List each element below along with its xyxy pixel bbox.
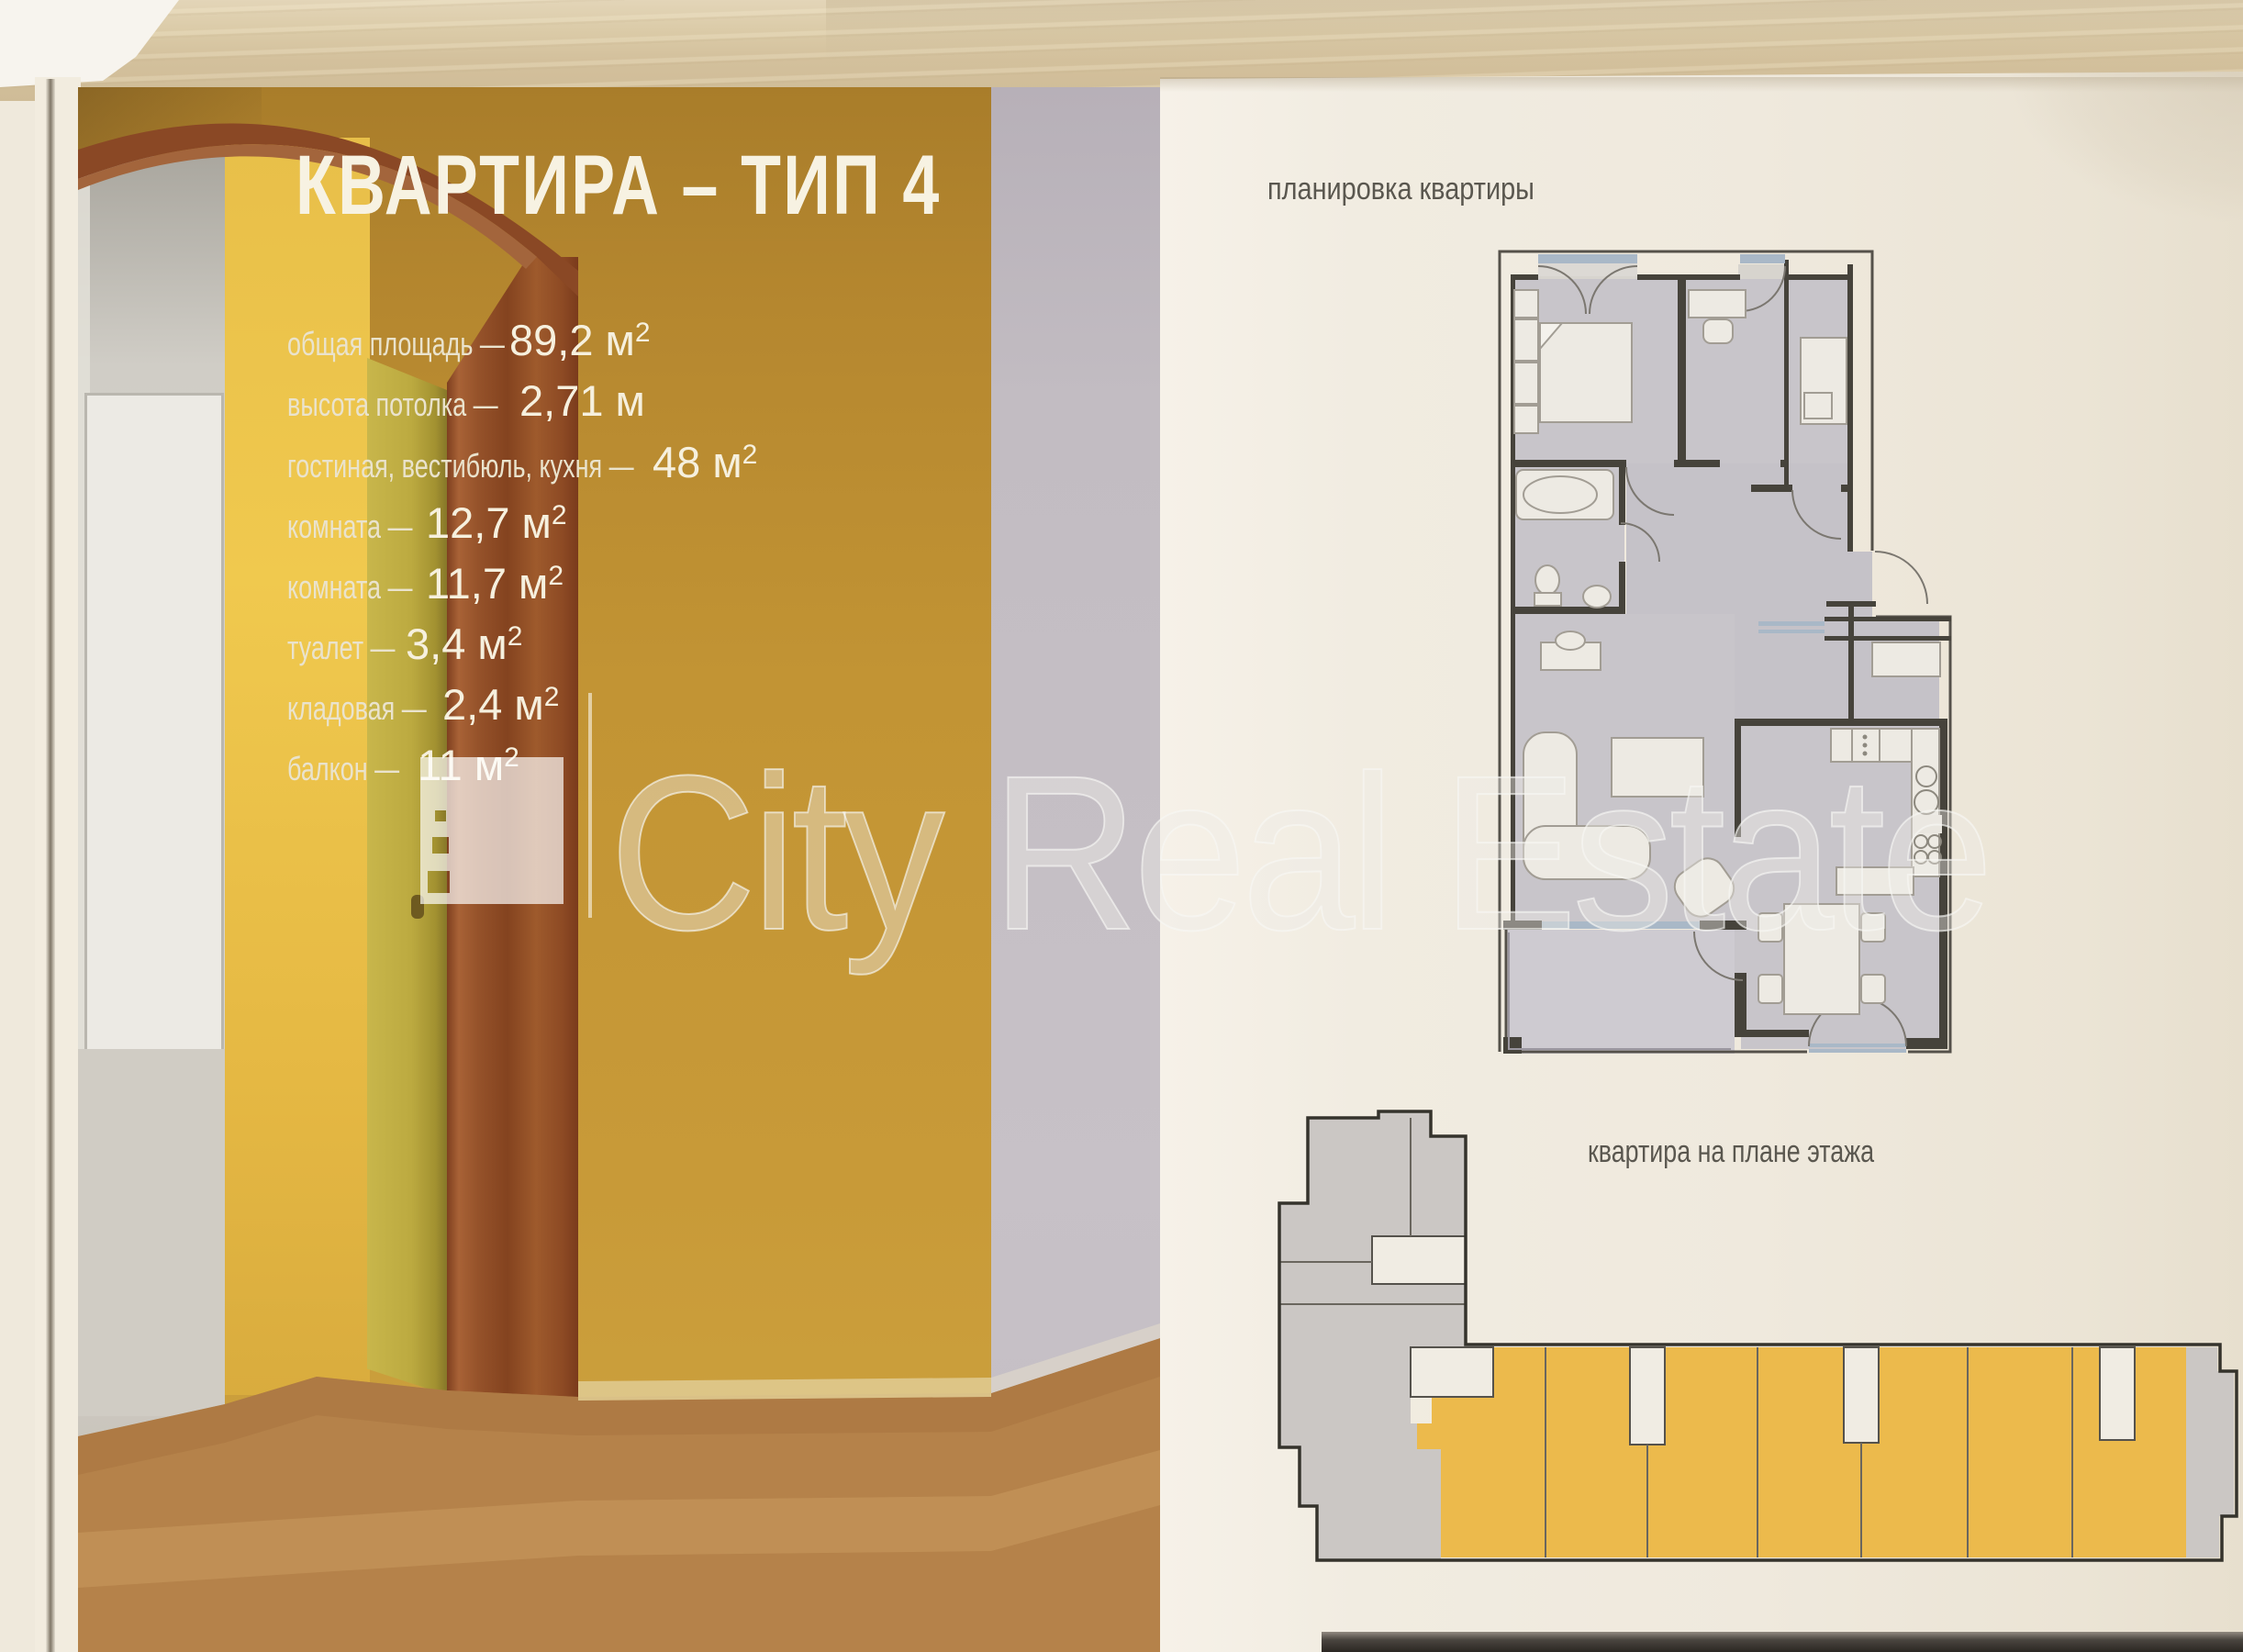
svg-text:City Real Estate: City Real Estate [609,730,1989,976]
